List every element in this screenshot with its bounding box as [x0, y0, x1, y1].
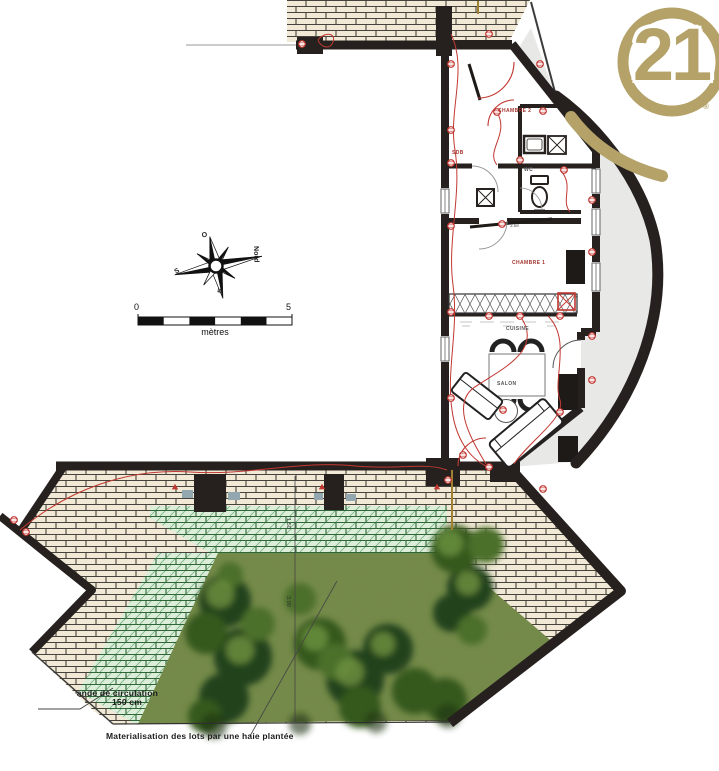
site-plan-graphic	[0, 0, 719, 771]
shower-box	[477, 189, 494, 206]
compass-north-label: Nord	[251, 246, 259, 263]
room-dimension-text: 3.58	[510, 224, 519, 229]
hedge-note: Materialisation des lots par une haie pl…	[106, 732, 294, 741]
room-label-bedroom2: CHAMBRE 2	[498, 109, 531, 115]
garden-dimension-lower: 3.00	[285, 596, 291, 607]
circulation-strip-note-line2: 150 cm	[0, 698, 142, 707]
circulation-strip-note: ande de circulation 150 cm	[0, 689, 158, 708]
room-label-kitchen: CUISINE	[506, 327, 529, 333]
compass-rose	[169, 227, 269, 307]
scale-bar	[138, 314, 292, 325]
site-plan-page: 21 ® Nord S O E 0 5 mètres CHAMBRE 2 SDB…	[0, 0, 719, 771]
room-label-wc: WC	[524, 168, 533, 174]
scale-unit-label: mètres	[184, 328, 246, 338]
logo-registered-mark: ®	[703, 103, 709, 112]
scale-end-value: 5	[286, 303, 291, 313]
washer-box	[548, 136, 566, 154]
furniture	[451, 64, 564, 468]
garden-dimension-upper: 1.50	[285, 518, 291, 529]
electrical-cables	[20, 34, 570, 530]
bath-sink	[524, 136, 545, 153]
logo-number: 21	[612, 14, 719, 95]
scale-start-value: 0	[134, 303, 139, 313]
room-label-bedroom1: CHAMBRE 1	[512, 261, 545, 267]
room-label-living-room: SALON	[497, 382, 517, 388]
room-label-bathroom: SDB	[452, 151, 464, 157]
